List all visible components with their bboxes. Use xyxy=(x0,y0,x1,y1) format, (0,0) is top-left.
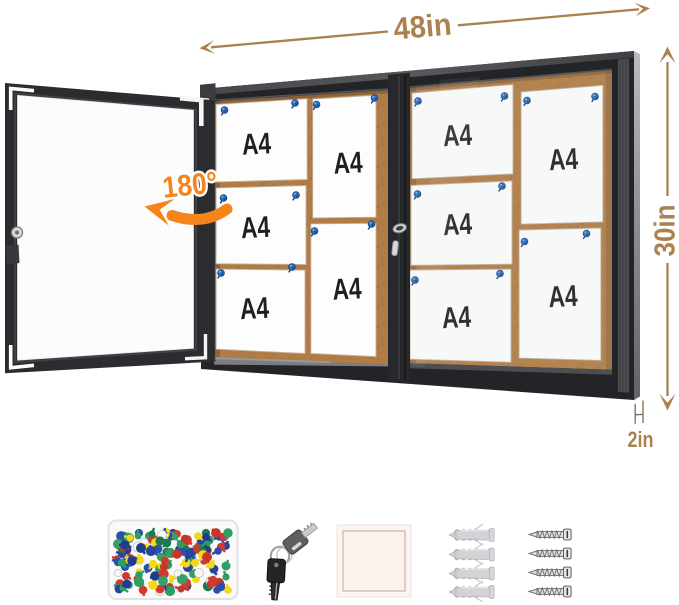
svg-text:48in: 48in xyxy=(392,7,453,47)
svg-text:A4: A4 xyxy=(239,292,270,326)
svg-text:A4: A4 xyxy=(241,127,272,161)
svg-text:A4: A4 xyxy=(332,272,363,306)
svg-text:A4: A4 xyxy=(333,146,364,180)
svg-text:180°: 180° xyxy=(161,166,219,205)
svg-text:A4: A4 xyxy=(240,211,271,245)
svg-text:2in: 2in xyxy=(628,427,654,452)
svg-text:30in: 30in xyxy=(650,205,679,257)
